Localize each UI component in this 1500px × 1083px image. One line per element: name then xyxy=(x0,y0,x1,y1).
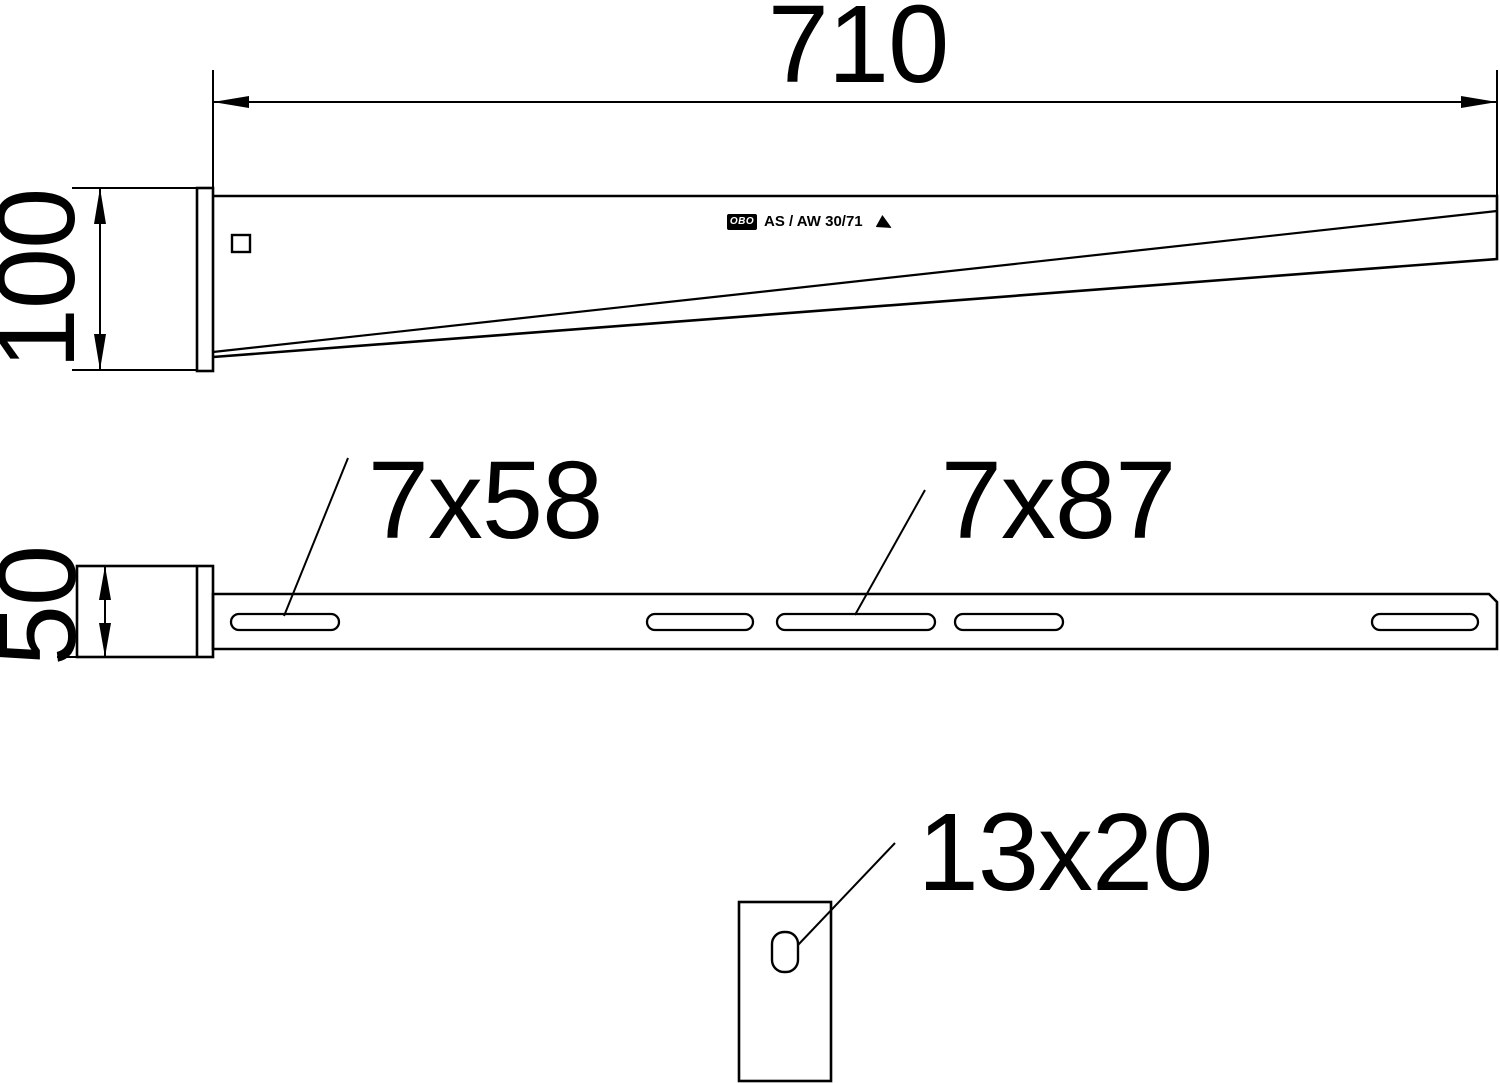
slot-1-7x58 xyxy=(231,614,339,630)
callout-label-7x58: 7x58 xyxy=(368,446,603,556)
product-marking: OBO AS / AW 30/71 xyxy=(727,213,892,230)
model-label: AS / AW 30/71 xyxy=(764,214,863,230)
leader-7x58 xyxy=(284,458,348,616)
plan-arm-strip xyxy=(213,594,1497,649)
dim-50-arrow-up-icon xyxy=(99,566,111,600)
certification-triangle-icon xyxy=(876,215,892,228)
dim-50-arrow-down-icon xyxy=(99,623,111,657)
detail-oblong-hole xyxy=(772,932,798,972)
side-arm-bend-line xyxy=(213,211,1497,352)
dim-label-710: 710 xyxy=(768,0,949,100)
side-square-hole xyxy=(232,235,250,252)
obo-logo-text: OBO xyxy=(730,217,754,227)
side-wall-plate xyxy=(197,188,213,371)
dim-label-100: 100 xyxy=(0,189,92,370)
detail-plate xyxy=(739,902,831,1081)
leader-13x20 xyxy=(798,843,895,945)
obo-logo: OBO xyxy=(727,214,757,230)
callout-label-7x87: 7x87 xyxy=(941,446,1176,556)
dim-710-arrow-right-icon xyxy=(1461,96,1497,108)
slot-3-7x87 xyxy=(777,614,935,630)
drawing-canvas: 710 100 50 7x58 7x87 13x20 OBO AS / AW 3… xyxy=(0,0,1500,1083)
plan-slotted-holes xyxy=(231,614,1478,630)
slot-4-7x58 xyxy=(955,614,1063,630)
dim-label-50: 50 xyxy=(0,546,93,666)
dim-710-arrow-left-icon xyxy=(213,96,249,108)
leader-7x87 xyxy=(855,490,925,615)
callout-label-13x20: 13x20 xyxy=(918,798,1213,908)
slot-2-7x58 xyxy=(647,614,753,630)
bracket-drawing xyxy=(0,0,1500,1083)
slot-5-7x58 xyxy=(1372,614,1478,630)
